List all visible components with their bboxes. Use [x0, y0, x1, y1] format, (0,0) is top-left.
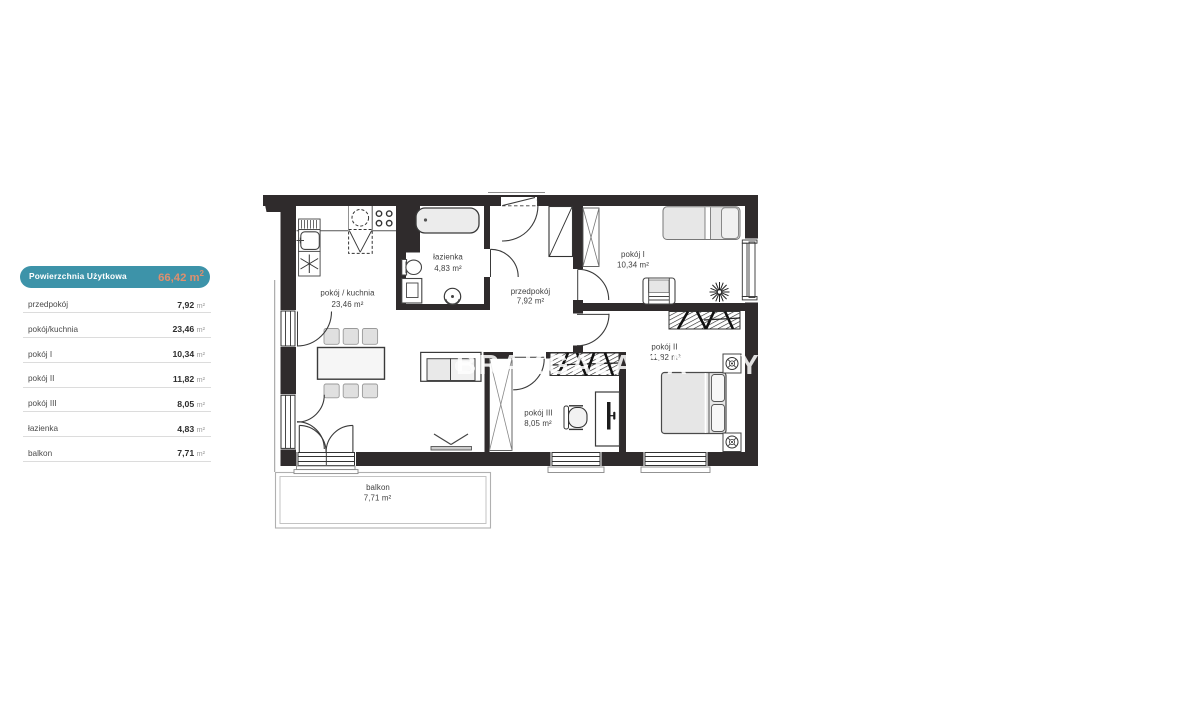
svg-text:przedpokój: przedpokój: [511, 287, 551, 296]
svg-text:pokój I: pokój I: [621, 250, 645, 259]
svg-text:łazienka: łazienka: [433, 253, 463, 262]
svg-text:7,92 m²: 7,92 m²: [517, 297, 545, 306]
svg-text:Y: Y: [740, 349, 759, 380]
svg-text:10,34 m²: 10,34 m²: [617, 261, 649, 270]
svg-text:balkon: balkon: [366, 483, 390, 492]
svg-text:BRAKGAŁA SA: BRAKGAŁA SA: [456, 349, 689, 380]
svg-text:4,83 m²: 4,83 m²: [434, 264, 462, 273]
svg-text:23,46 m²: 23,46 m²: [332, 300, 364, 309]
svg-text:pokój / kuchnia: pokój / kuchnia: [320, 289, 375, 298]
svg-text:7,71 m²: 7,71 m²: [364, 494, 392, 503]
svg-text:pokój III: pokój III: [524, 409, 553, 418]
svg-text:8,05 m²: 8,05 m²: [524, 419, 552, 428]
